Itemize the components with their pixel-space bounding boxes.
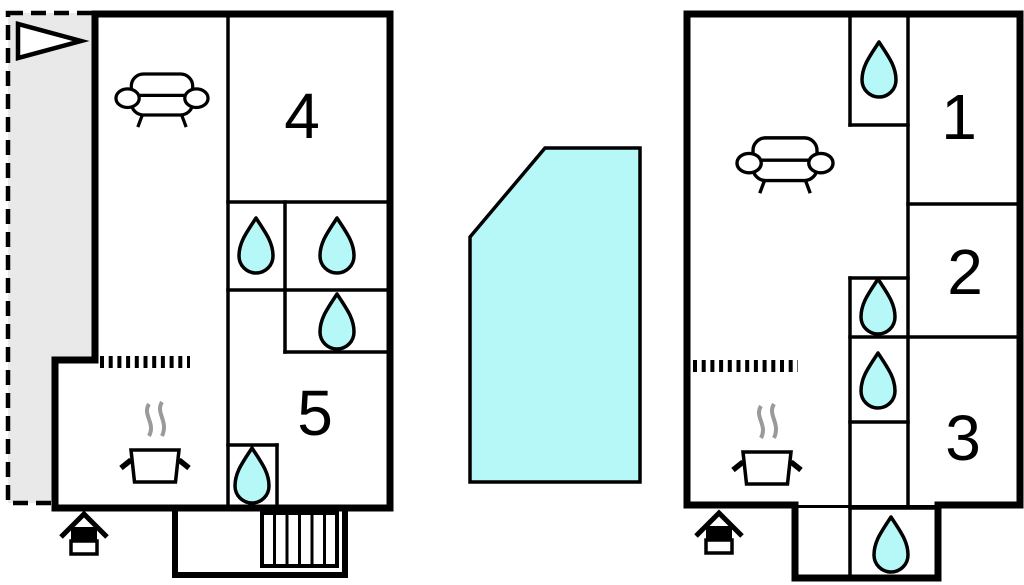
right-floorplan: 1 2 3 (687, 14, 1020, 578)
grill-icon (696, 513, 742, 553)
room-label-3: 3 (945, 402, 981, 474)
right-entrance-extension (795, 505, 938, 578)
grill-icon (61, 514, 107, 554)
room-label-2: 2 (947, 236, 983, 308)
stairs-icon (262, 513, 337, 566)
room-label-5: 5 (297, 377, 333, 449)
floorplan-svg: 4 5 (0, 0, 1024, 585)
room-label-1: 1 (941, 81, 977, 153)
room-label-4: 4 (284, 80, 320, 152)
floorplan-image: 4 5 (0, 0, 1024, 585)
swimming-pool (470, 148, 640, 482)
